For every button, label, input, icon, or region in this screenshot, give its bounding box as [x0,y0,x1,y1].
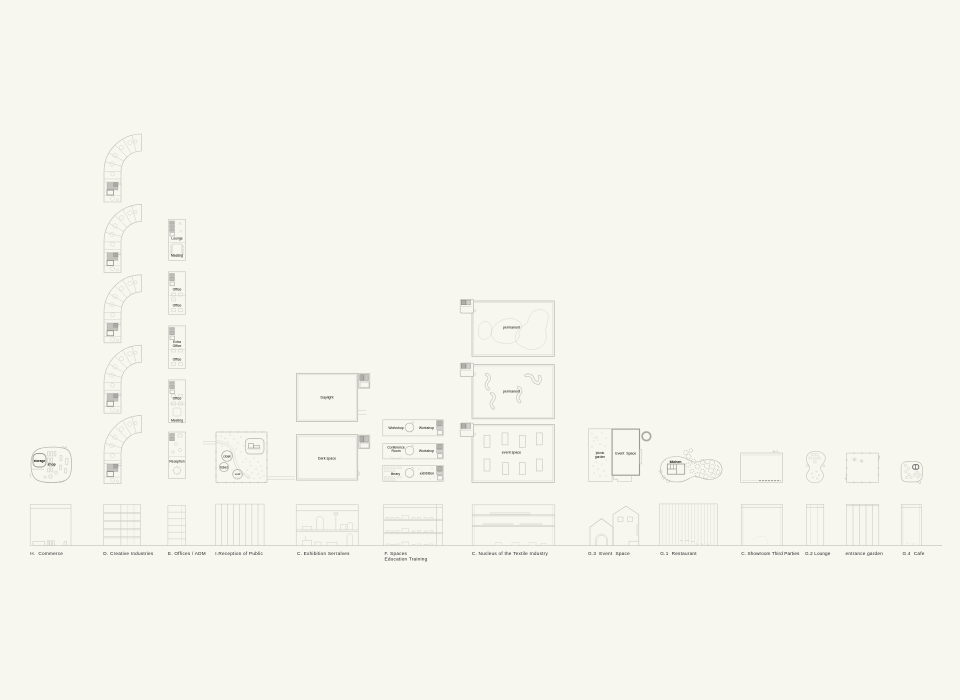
svg-text:Workshop: Workshop [388,426,403,430]
svg-text:G.4 Cafe: G.4 Cafe [903,551,925,556]
svg-text:storage: storage [34,459,46,463]
svg-text:Workshop: Workshop [419,449,434,453]
svg-text:Office: Office [173,304,182,308]
svg-text:G.1 Restaurant: G.1 Restaurant [660,551,697,556]
svg-text:H. Commerce: H. Commerce [30,551,63,556]
svg-text:void: void [235,472,241,476]
svg-text:E. Offices / ADM: E. Offices / ADM [168,551,206,556]
svg-text:F. Spaces: F. Spaces [385,551,408,556]
svg-text:permanent: permanent [503,326,520,330]
svg-text:Room: Room [391,449,400,453]
svg-text:Office: Office [173,287,182,291]
svg-text:Dark space: Dark space [318,457,336,461]
svg-text:D. Creative Industries: D. Creative Industries [103,551,154,556]
svg-text:cloak: cloak [223,454,231,458]
svg-text:library: library [391,472,401,476]
svg-text:Meeting: Meeting [171,418,183,422]
svg-text:event space: event space [502,450,521,454]
svg-text:Event Space: Event Space [615,452,636,456]
svg-text:entrance garden: entrance garden [846,551,884,556]
svg-text:permanent: permanent [503,390,520,394]
svg-text:Education Training: Education Training [385,557,428,562]
svg-text:Office: Office [173,357,182,361]
svg-text:C. Exhibition Serralves: C. Exhibition Serralves [297,551,350,556]
svg-text:kitchen: kitchen [670,460,682,464]
svg-text:Lounge: Lounge [171,237,182,241]
svg-text:C. Showroom Third Parties: C. Showroom Third Parties [741,551,800,556]
svg-text:Office: Office [173,397,182,401]
svg-text:ticket: ticket [220,465,228,469]
svg-text:exhibition: exhibition [420,471,434,475]
svg-text:I.Reception of Public: I.Reception of Public [215,551,263,556]
svg-text:garden: garden [595,455,605,459]
svg-text:Daylight: Daylight [321,396,334,400]
svg-text:C. Nucleus of the Textile Indu: C. Nucleus of the Textile Industry [472,551,549,556]
svg-text:Reception: Reception [169,459,184,463]
svg-text:Office: Office [173,344,182,348]
svg-text:G.2 Lounge: G.2 Lounge [805,551,831,556]
svg-text:Meeting: Meeting [171,254,183,258]
svg-text:G.3 Event Space: G.3 Event Space [588,551,630,556]
svg-text:Workshop: Workshop [419,426,434,430]
